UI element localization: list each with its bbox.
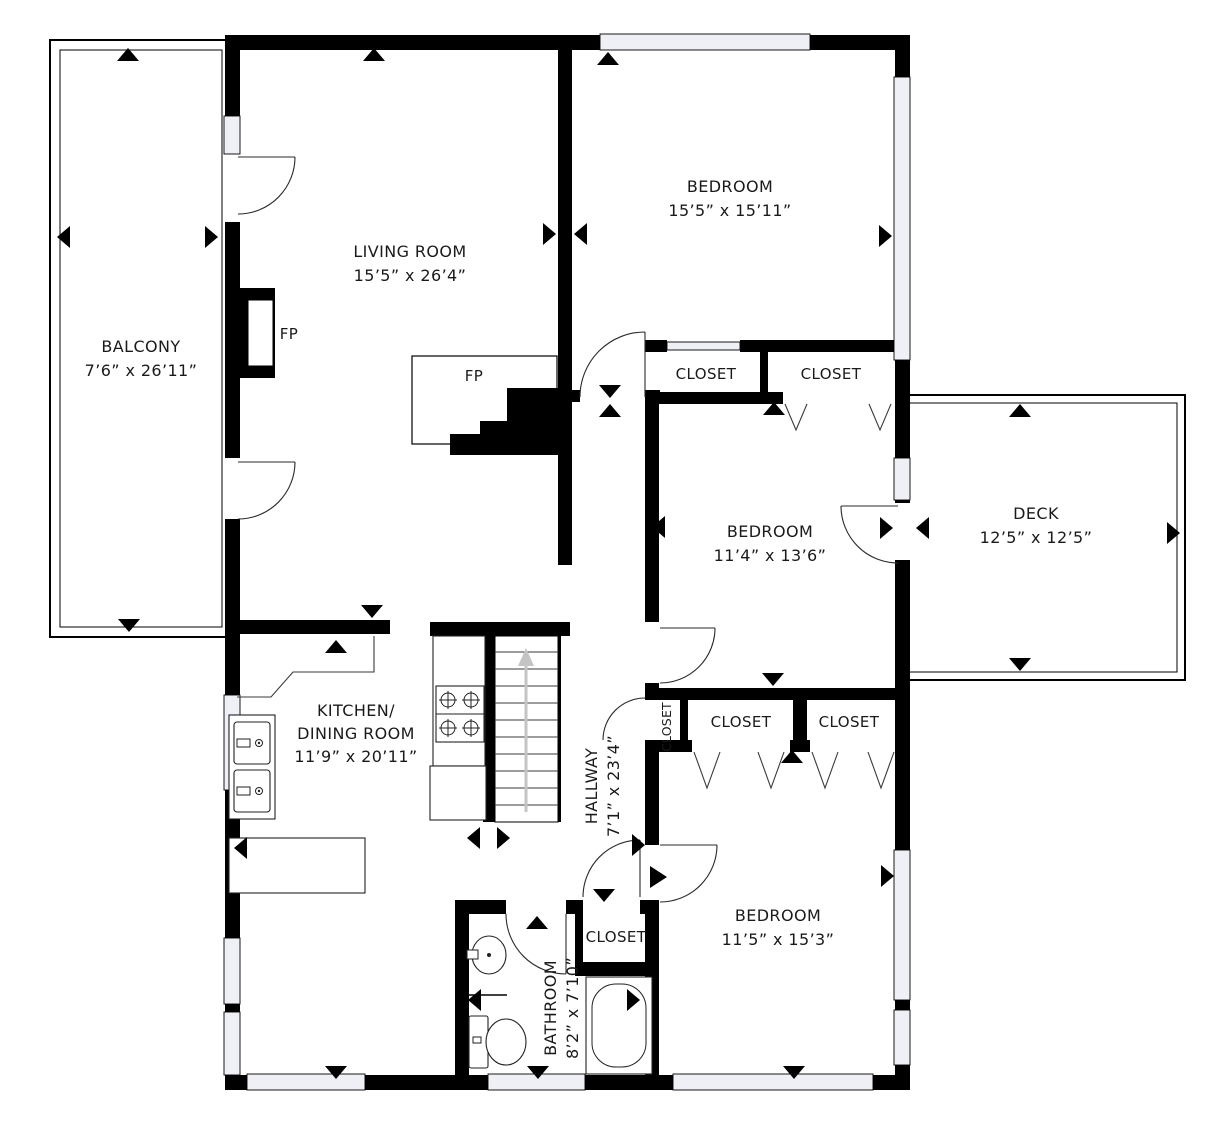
living-room-label: LIVING ROOM bbox=[353, 242, 466, 261]
double-sink-icon bbox=[229, 715, 275, 819]
bedroom-bottom-label: BEDROOM bbox=[735, 906, 821, 925]
hallway-dims: 7’1” x 23’4” bbox=[604, 735, 623, 837]
fireplace-left bbox=[233, 288, 275, 378]
window-kitchen-bottom bbox=[247, 1074, 365, 1090]
bedroom-top-label: BEDROOM bbox=[687, 177, 773, 196]
closet-upper-left-label: CLOSET bbox=[676, 365, 737, 383]
hallway-label: HALLWAY bbox=[582, 748, 601, 825]
bathroom-dims: 8’2” x 7’10” bbox=[563, 957, 582, 1059]
kitchen-dims: 11’9” x 20’11” bbox=[294, 747, 417, 766]
kitchen-label-line1: KITCHEN/ bbox=[317, 701, 395, 720]
closet-hall-small-label: CLOSET bbox=[659, 702, 674, 752]
window-bedroom-top-right bbox=[894, 77, 910, 360]
balcony-dims: 7’6” x 26’11” bbox=[85, 361, 198, 380]
bedroom-middle-dims: 11’4” x 13’6” bbox=[714, 546, 827, 565]
staircase bbox=[495, 636, 558, 822]
bedroom-bottom-dims: 11’5” x 15’3” bbox=[722, 930, 835, 949]
balcony-label: BALCONY bbox=[101, 337, 180, 356]
bathroom-label: BATHROOM bbox=[541, 960, 560, 1056]
window-bedroom-bottom-right2 bbox=[894, 1010, 910, 1065]
closet-upper-right-label: CLOSET bbox=[801, 365, 862, 383]
closet-lower-left-label: CLOSET bbox=[711, 713, 772, 731]
fireplace-center bbox=[412, 356, 572, 455]
fireplace-left-label: FP bbox=[280, 325, 298, 343]
appliance-icon bbox=[430, 766, 486, 820]
kitchen-label-line2: DINING ROOM bbox=[297, 724, 415, 743]
bedroom-top-dims: 15’5” x 15’11” bbox=[668, 201, 791, 220]
fireplace-center-label: FP bbox=[465, 367, 483, 385]
floor-plan-page: BALCONY 7’6” x 26’11” LIVING ROOM 15’5” … bbox=[0, 0, 1206, 1128]
bathtub-icon bbox=[586, 977, 652, 1074]
window-bedroom-bottom bbox=[673, 1074, 873, 1090]
window-bedroom-top bbox=[600, 34, 810, 50]
toilet-icon bbox=[469, 1016, 526, 1068]
closet-back-panel bbox=[667, 342, 740, 350]
floor-plan-svg: BALCONY 7’6” x 26’11” LIVING ROOM 15’5” … bbox=[0, 0, 1206, 1128]
window-bedroom-bottom-right bbox=[894, 850, 910, 1000]
bedroom-middle-label: BEDROOM bbox=[727, 522, 813, 541]
deck-label: DECK bbox=[1013, 504, 1059, 523]
closet-lower-right-label: CLOSET bbox=[819, 713, 880, 731]
window-living-left bbox=[224, 116, 240, 154]
living-room-dims: 15’5” x 26’4” bbox=[354, 266, 467, 285]
deck-dims: 12’5” x 12’5” bbox=[980, 528, 1093, 547]
window-kitchen-left-lower2 bbox=[224, 1012, 240, 1075]
counter-island bbox=[229, 838, 365, 893]
stove-icon bbox=[436, 686, 484, 742]
closet-bathroom-label: CLOSET bbox=[586, 928, 647, 946]
window-kitchen-left-lower bbox=[224, 938, 240, 1004]
window-bedroom-middle-right bbox=[894, 458, 910, 500]
